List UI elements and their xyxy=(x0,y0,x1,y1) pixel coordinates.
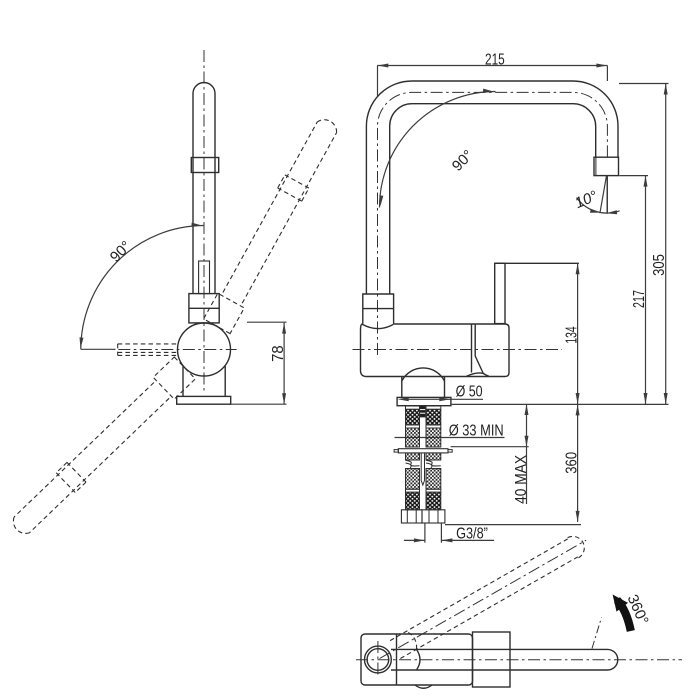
svg-text:40 MAX: 40 MAX xyxy=(513,454,530,504)
svg-text:360: 360 xyxy=(563,452,580,474)
svg-text:G3/8”: G3/8” xyxy=(456,525,488,542)
svg-text:134: 134 xyxy=(564,326,581,343)
svg-text:Ø 33 MIN: Ø 33 MIN xyxy=(449,422,504,439)
svg-text:217: 217 xyxy=(631,290,648,308)
svg-text:305: 305 xyxy=(651,254,668,276)
svg-text:215: 215 xyxy=(485,52,505,69)
svg-text:Ø 50: Ø 50 xyxy=(456,383,483,400)
svg-text:78: 78 xyxy=(270,345,287,362)
